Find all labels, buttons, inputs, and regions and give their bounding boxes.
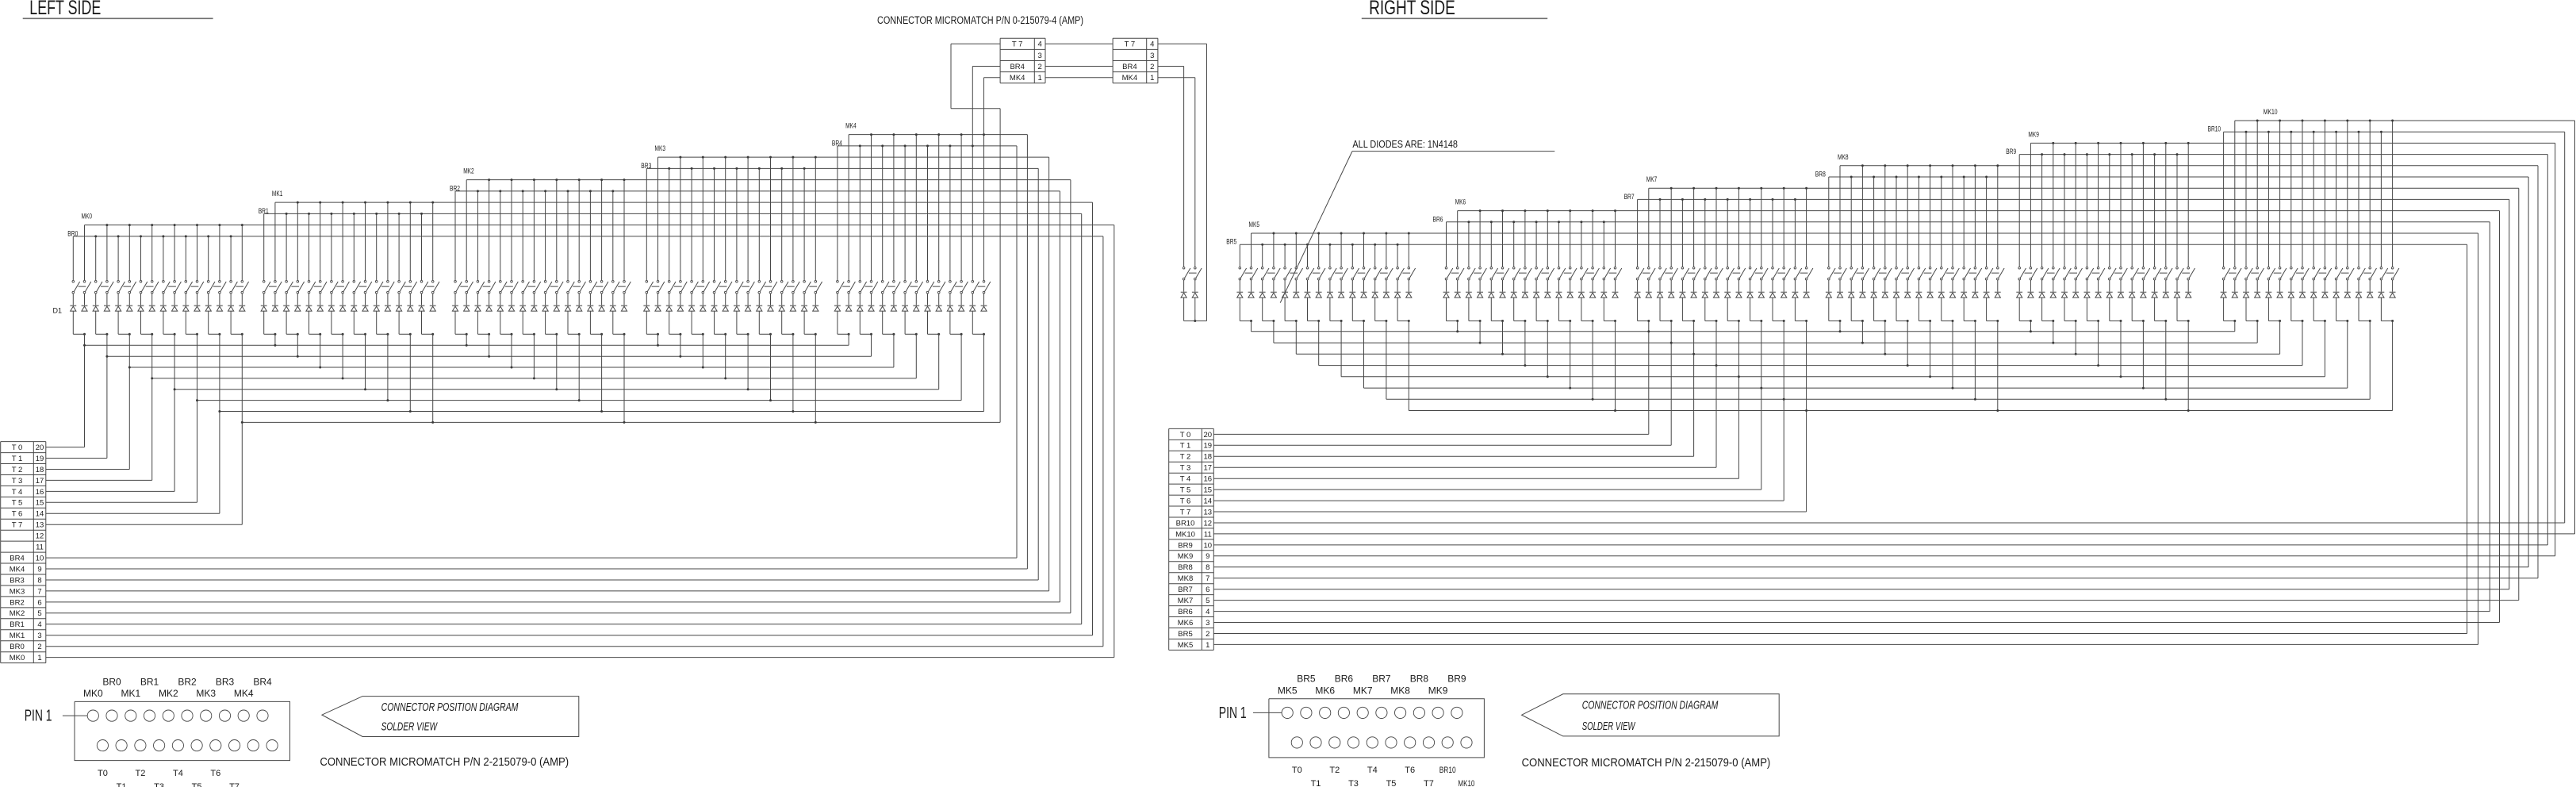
svg-text:MK2: MK2	[463, 167, 474, 175]
svg-text:11: 11	[36, 543, 44, 552]
svg-text:LEFT SIDE: LEFT SIDE	[29, 0, 101, 19]
svg-text:MK6: MK6	[1455, 198, 1466, 206]
svg-text:5: 5	[37, 609, 41, 618]
svg-text:4: 4	[1150, 40, 1154, 49]
svg-text:BR8: BR8	[1178, 563, 1192, 572]
svg-text:18: 18	[1204, 453, 1213, 462]
svg-text:T 0: T 0	[12, 443, 23, 452]
svg-text:BR4: BR4	[253, 676, 272, 687]
svg-text:MK4: MK4	[1010, 74, 1025, 83]
svg-text:2: 2	[37, 643, 41, 651]
svg-text:BR1: BR1	[259, 207, 269, 215]
svg-text:MK9: MK9	[2028, 130, 2039, 138]
svg-text:MK5: MK5	[1249, 221, 1260, 228]
svg-text:16: 16	[1204, 475, 1213, 484]
svg-text:T 5: T 5	[1180, 486, 1191, 495]
svg-text:BR5: BR5	[1226, 238, 1236, 246]
svg-text:T1: T1	[1311, 779, 1321, 787]
svg-text:BR3: BR3	[10, 576, 24, 585]
svg-text:MK3: MK3	[655, 144, 666, 152]
svg-text:CONNECTOR POSITION DIAGRAM: CONNECTOR POSITION DIAGRAM	[1582, 699, 1719, 712]
svg-text:T 4: T 4	[1180, 475, 1191, 484]
svg-text:8: 8	[1206, 563, 1209, 572]
svg-text:7: 7	[1206, 574, 1209, 583]
svg-text:T 6: T 6	[12, 510, 23, 519]
svg-text:T1: T1	[117, 782, 127, 787]
svg-text:BR6: BR6	[1178, 608, 1192, 616]
svg-text:T7: T7	[1424, 779, 1434, 787]
svg-text:BR2: BR2	[178, 676, 197, 687]
svg-text:BR0: BR0	[102, 676, 121, 687]
svg-text:3: 3	[1038, 52, 1042, 60]
svg-text:BR7: BR7	[1372, 674, 1391, 685]
svg-text:T 1: T 1	[12, 455, 23, 463]
svg-text:BR8: BR8	[1410, 674, 1429, 685]
svg-text:17: 17	[36, 477, 44, 486]
svg-text:T 7: T 7	[1012, 40, 1023, 49]
svg-text:BR3: BR3	[216, 676, 235, 687]
svg-text:11: 11	[1204, 530, 1212, 539]
svg-text:CONNECTOR MICROMATCH P/N 0-215: CONNECTOR MICROMATCH P/N 0-215079-4 (AMP…	[877, 14, 1083, 26]
svg-text:CONNECTOR POSITION DIAGRAM: CONNECTOR POSITION DIAGRAM	[381, 701, 519, 714]
svg-text:BR5: BR5	[1297, 674, 1316, 685]
svg-text:T2: T2	[1329, 766, 1340, 775]
svg-text:4: 4	[1038, 40, 1042, 49]
svg-text:6: 6	[1206, 585, 1209, 594]
svg-text:MK2: MK2	[159, 688, 178, 699]
svg-text:T 7: T 7	[1180, 508, 1191, 516]
svg-text:T 2: T 2	[12, 466, 23, 474]
svg-text:T4: T4	[1367, 766, 1378, 775]
svg-text:MK2: MK2	[10, 609, 25, 618]
svg-text:MK1: MK1	[121, 688, 140, 699]
svg-text:19: 19	[1204, 442, 1213, 451]
svg-text:MK1: MK1	[272, 190, 283, 198]
svg-text:16: 16	[36, 488, 44, 497]
svg-text:BR7: BR7	[1178, 585, 1192, 594]
svg-text:14: 14	[1204, 497, 1213, 506]
svg-text:SOLDER VIEW: SOLDER VIEW	[1582, 720, 1636, 733]
svg-text:T 0: T 0	[1180, 431, 1191, 440]
svg-text:T2: T2	[135, 769, 145, 778]
svg-text:10: 10	[1204, 541, 1213, 550]
svg-text:BR9: BR9	[1447, 674, 1466, 685]
svg-text:2: 2	[1150, 63, 1154, 71]
svg-text:13: 13	[36, 521, 44, 530]
svg-text:MK9: MK9	[1428, 685, 1448, 696]
svg-text:T7: T7	[229, 782, 240, 787]
svg-text:D1: D1	[52, 307, 62, 315]
svg-text:MK8: MK8	[1838, 153, 1849, 161]
svg-text:CONNECTOR MICROMATCH P/N 2-215: CONNECTOR MICROMATCH P/N 2-215079-0 (AMP…	[320, 755, 569, 769]
svg-text:T 2: T 2	[1180, 453, 1191, 462]
svg-text:T5: T5	[1386, 779, 1397, 787]
svg-text:MK8: MK8	[1178, 574, 1194, 583]
svg-text:15: 15	[1204, 486, 1213, 495]
svg-text:T3: T3	[154, 782, 164, 787]
svg-text:T 4: T 4	[12, 488, 23, 497]
svg-text:MK7: MK7	[1178, 597, 1194, 605]
svg-text:T6: T6	[210, 769, 220, 778]
svg-text:1: 1	[1150, 74, 1154, 83]
svg-text:T3: T3	[1348, 779, 1359, 787]
svg-text:MK7: MK7	[1646, 175, 1658, 183]
svg-text:MK10: MK10	[2264, 108, 2278, 116]
svg-text:2: 2	[1206, 630, 1209, 639]
svg-text:10: 10	[36, 555, 44, 563]
svg-text:7: 7	[37, 587, 41, 596]
svg-text:BR0: BR0	[10, 643, 24, 651]
svg-text:19: 19	[36, 455, 44, 463]
svg-text:MK10: MK10	[1175, 530, 1195, 539]
svg-text:BR9: BR9	[1178, 541, 1192, 550]
svg-text:6: 6	[37, 598, 41, 607]
svg-text:T 3: T 3	[1180, 464, 1191, 473]
svg-text:MK1: MK1	[10, 632, 25, 640]
svg-text:T 3: T 3	[12, 477, 23, 486]
svg-text:MK10: MK10	[1458, 779, 1474, 787]
svg-text:4: 4	[37, 620, 41, 629]
svg-text:T0: T0	[1292, 766, 1302, 775]
svg-text:BR6: BR6	[1433, 215, 1443, 223]
svg-text:PIN 1: PIN 1	[25, 708, 52, 725]
svg-text:BR4: BR4	[832, 139, 842, 147]
svg-text:MK9: MK9	[1178, 552, 1194, 561]
svg-text:BR7: BR7	[1624, 193, 1635, 201]
svg-text:MK5: MK5	[1278, 685, 1298, 696]
svg-text:18: 18	[36, 466, 44, 474]
svg-text:1: 1	[1206, 641, 1209, 650]
svg-text:14: 14	[36, 510, 44, 519]
svg-text:T 7: T 7	[12, 521, 23, 530]
svg-text:3: 3	[1150, 52, 1154, 60]
svg-text:BR0: BR0	[67, 229, 78, 237]
svg-text:MK4: MK4	[10, 565, 25, 574]
svg-text:MK3: MK3	[196, 688, 216, 699]
svg-text:9: 9	[1206, 552, 1209, 561]
svg-text:3: 3	[1206, 619, 1209, 628]
svg-text:17: 17	[1204, 464, 1213, 473]
svg-text:12: 12	[1204, 519, 1213, 528]
svg-text:1: 1	[1038, 74, 1042, 83]
svg-text:3: 3	[37, 632, 41, 640]
svg-text:MK0: MK0	[82, 213, 93, 221]
svg-text:MK0: MK0	[10, 654, 25, 662]
svg-text:T 5: T 5	[12, 499, 23, 508]
svg-text:T4: T4	[173, 769, 183, 778]
svg-text:BR1: BR1	[140, 676, 159, 687]
svg-text:BR10: BR10	[1439, 766, 1456, 775]
svg-text:BR9: BR9	[2006, 148, 2016, 155]
svg-text:MK3: MK3	[10, 587, 25, 596]
svg-text:5: 5	[1206, 597, 1209, 605]
svg-text:T0: T0	[98, 769, 108, 778]
svg-text:BR4: BR4	[1122, 63, 1137, 71]
svg-text:BR6: BR6	[1335, 674, 1354, 685]
svg-text:15: 15	[36, 499, 44, 508]
svg-text:BR8: BR8	[1815, 171, 1826, 179]
svg-text:MK0: MK0	[83, 688, 103, 699]
svg-text:MK4: MK4	[1122, 74, 1138, 83]
svg-text:13: 13	[1204, 508, 1213, 516]
svg-text:ALL DIODES ARE: 1N4148: ALL DIODES ARE: 1N4148	[1352, 138, 1458, 150]
svg-text:2: 2	[1038, 63, 1042, 71]
svg-text:BR2: BR2	[450, 184, 460, 192]
svg-text:1: 1	[37, 654, 41, 662]
svg-text:MK5: MK5	[1178, 641, 1194, 650]
svg-text:RIGHT SIDE: RIGHT SIDE	[1369, 0, 1455, 19]
svg-text:BR10: BR10	[2208, 125, 2221, 133]
svg-text:MK6: MK6	[1178, 619, 1194, 628]
svg-text:T6: T6	[1405, 766, 1415, 775]
svg-text:8: 8	[37, 576, 41, 585]
svg-text:MK4: MK4	[845, 122, 857, 130]
svg-text:PIN 1: PIN 1	[1219, 704, 1247, 722]
svg-text:T 7: T 7	[1125, 40, 1136, 49]
svg-text:MK6: MK6	[1315, 685, 1335, 696]
svg-text:T 6: T 6	[1180, 497, 1191, 506]
svg-text:T5: T5	[192, 782, 202, 787]
svg-text:MK7: MK7	[1353, 685, 1373, 696]
svg-text:MK4: MK4	[234, 688, 254, 699]
svg-text:T 1: T 1	[1180, 442, 1191, 451]
svg-text:BR10: BR10	[1176, 519, 1195, 528]
svg-text:BR2: BR2	[10, 598, 24, 607]
svg-text:SOLDER VIEW: SOLDER VIEW	[381, 720, 438, 733]
svg-text:4: 4	[1206, 608, 1209, 616]
svg-text:CONNECTOR MICROMATCH P/N 2-215: CONNECTOR MICROMATCH P/N 2-215079-0 (AMP…	[1522, 756, 1771, 770]
svg-text:BR4: BR4	[1010, 63, 1024, 71]
svg-text:BR5: BR5	[1178, 630, 1192, 639]
svg-text:MK8: MK8	[1390, 685, 1410, 696]
svg-text:9: 9	[37, 565, 41, 574]
svg-text:20: 20	[36, 443, 44, 452]
svg-text:BR4: BR4	[10, 555, 24, 563]
svg-text:12: 12	[36, 532, 44, 541]
svg-text:BR3: BR3	[641, 162, 651, 170]
svg-text:BR1: BR1	[10, 620, 24, 629]
svg-text:20: 20	[1204, 431, 1213, 440]
